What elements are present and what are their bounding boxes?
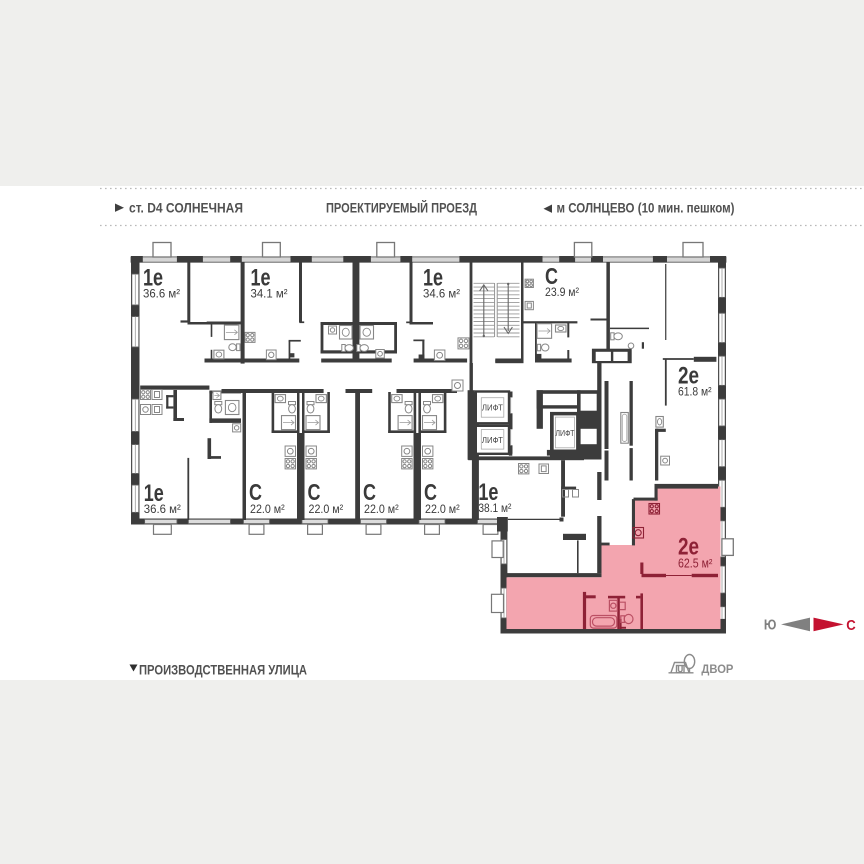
svg-text:34.6 м²: 34.6 м² [423,286,460,300]
svg-text:36.6 м²: 36.6 м² [144,502,181,516]
svg-text:61.8 м²: 61.8 м² [678,385,712,399]
svg-text:38.1 м²: 38.1 м² [478,501,511,515]
svg-text:С: С [424,479,437,505]
svg-text:С: С [308,479,321,505]
svg-text:36.6 м²: 36.6 м² [143,286,180,300]
svg-text:м СОЛНЦЕВО (10 мин. пешком): м СОЛНЦЕВО (10 мин. пешком) [557,201,735,216]
svg-text:22.0 м²: 22.0 м² [309,502,344,516]
svg-text:62.5 м²: 62.5 м² [678,556,712,570]
svg-text:С: С [249,479,262,505]
svg-text:22.0 м²: 22.0 м² [364,502,399,516]
svg-text:ЛИФТ: ЛИФТ [482,436,503,445]
svg-text:С: С [846,618,856,634]
svg-text:ДВОР: ДВОР [701,662,733,676]
svg-text:ЛИФТ: ЛИФТ [482,404,503,413]
svg-text:Ю: Ю [764,618,777,634]
svg-text:ПРОЕКТИРУЕМЫЙ ПРОЕЗД: ПРОЕКТИРУЕМЫЙ ПРОЕЗД [326,201,477,216]
svg-text:ст. D4 СОЛНЕЧНАЯ: ст. D4 СОЛНЕЧНАЯ [129,201,243,216]
svg-text:С: С [363,479,376,505]
svg-text:34.1 м²: 34.1 м² [251,286,288,300]
svg-text:23.9 м²: 23.9 м² [545,285,579,299]
svg-text:22.0 м²: 22.0 м² [425,502,460,516]
svg-text:ПРОИЗВОДСТВЕННАЯ УЛИЦА: ПРОИЗВОДСТВЕННАЯ УЛИЦА [139,663,307,678]
svg-text:ЛИФТ: ЛИФТ [555,429,574,438]
svg-text:22.0 м²: 22.0 м² [250,502,285,516]
